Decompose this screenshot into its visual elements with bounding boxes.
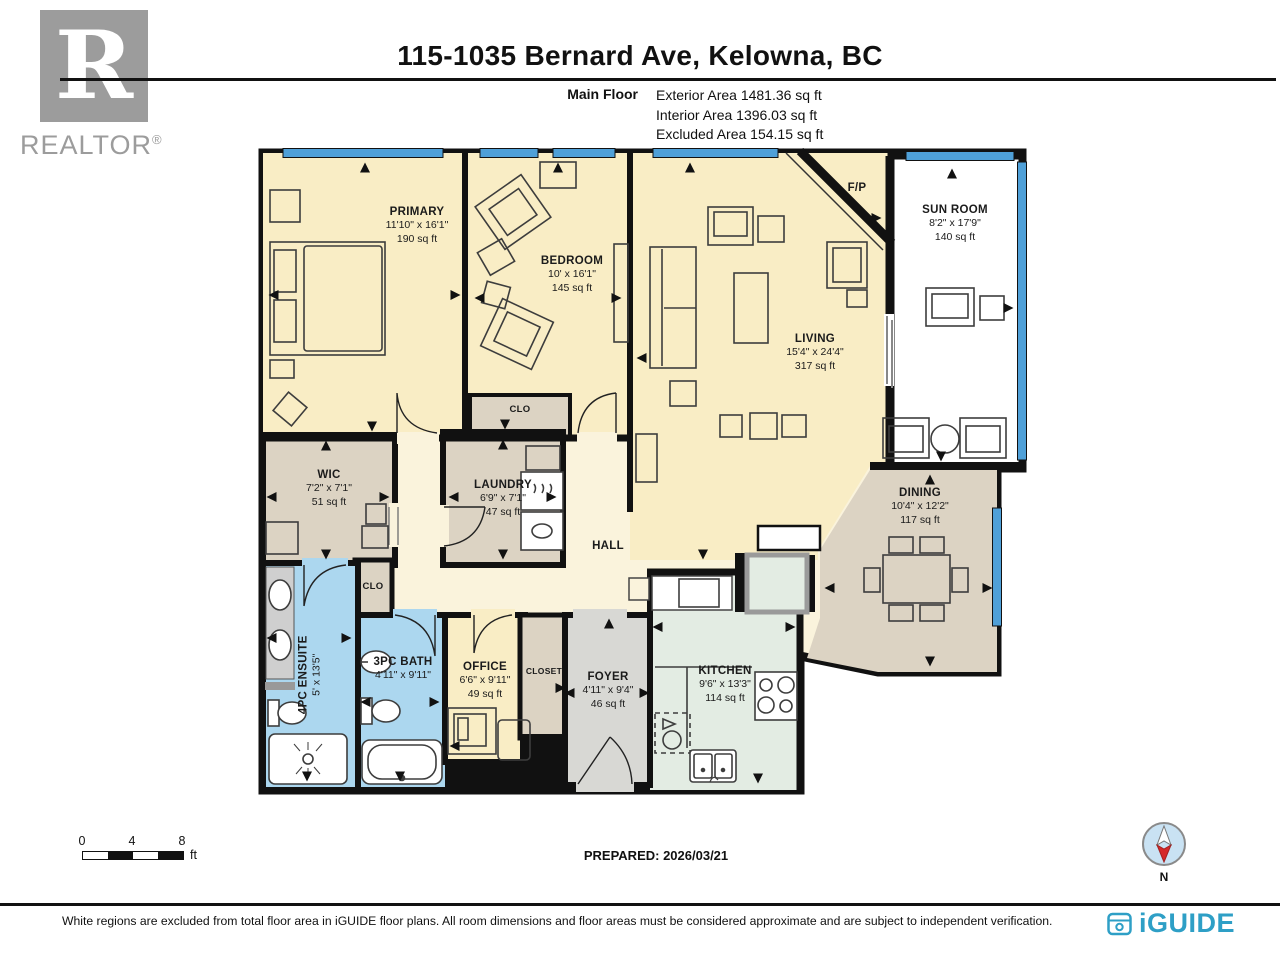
realtor-wordmark: REALTOR® (20, 130, 163, 161)
prepared-date: PREPARED: 2026/03/21 (556, 848, 756, 863)
room-label-clo-bedroom: CLO (489, 404, 551, 416)
scale-tick-0: 0 (74, 834, 90, 848)
footer-divider (0, 903, 1280, 906)
window (653, 149, 778, 158)
room-label-laundry: LAUNDRY 6'9" x 7'1" 47 sq ft (443, 478, 563, 519)
room-label-bedroom: BEDROOM 10' x 16'1" 145 sq ft (512, 254, 632, 295)
room-label-hall: HALL (568, 539, 648, 553)
room-label-kitchen: KITCHEN 9'6" x 13'3" 114 sq ft (665, 664, 785, 705)
iguide-wordmark: iGUIDE (1139, 908, 1235, 939)
registered-mark: ® (152, 132, 163, 147)
kitchen-counter-icon (747, 555, 807, 612)
exterior-area: Exterior Area 1481.36 sq ft (656, 86, 823, 106)
room-label-living: LIVING 15'4" x 24'4" 317 sq ft (755, 332, 875, 373)
excluded-area: Excluded Area 154.15 sq ft (656, 125, 823, 145)
compass-icon: N (1136, 818, 1192, 894)
window (1018, 162, 1027, 460)
room-label-fireplace: F/P (826, 181, 888, 195)
room-label-primary: PRIMARY 11'10" x 16'1" 190 sq ft (357, 205, 477, 246)
scale-tick-4: 4 (124, 834, 140, 848)
sink-icon (269, 580, 291, 610)
window (993, 508, 1002, 626)
room-label-clo-hall: CLO (342, 581, 404, 593)
window (283, 149, 443, 158)
room-label-wic: WIC 7'2" x 7'1" 51 sq ft (269, 468, 389, 509)
window (480, 149, 538, 158)
room-label-dining: DINING 10'4" x 12'2" 117 sq ft (860, 486, 980, 527)
scale-bar-segments (82, 851, 184, 860)
compass-north-label: N (1136, 870, 1192, 884)
scale-bar: 0 4 8 ft (82, 834, 302, 864)
disclaimer-text: White regions are excluded from total fl… (62, 914, 1062, 928)
iguide-logo: iGUIDE (1106, 908, 1235, 939)
room-label-sunroom: SUN ROOM 8'2" x 17'9" 140 sq ft (895, 203, 1015, 244)
interior-area: Interior Area 1396.03 sq ft (656, 106, 823, 126)
window (553, 149, 615, 158)
room-label-foyer: FOYER 4'11" x 9'4" 46 sq ft (563, 670, 653, 711)
toilet-icon (372, 700, 400, 722)
scale-unit: ft (190, 848, 197, 862)
page-title: 115-1035 Bernard Ave, Kelowna, BC (0, 40, 1280, 72)
floor-plan: PRIMARY 11'10" x 16'1" 190 sq ft BEDROOM… (258, 148, 1028, 798)
room-label-ensuite: 4PC ENSUITE 5' x 13'5" (296, 595, 324, 755)
iguide-icon (1106, 910, 1134, 938)
floor-label: Main Floor (440, 86, 638, 102)
title-divider (60, 78, 1276, 81)
floorplan-page: { "header": { "title": "115-1035 Bernard… (0, 0, 1280, 960)
window (906, 152, 1014, 161)
area-summary: Exterior Area 1481.36 sq ft Interior Are… (656, 86, 823, 145)
scale-tick-8: 8 (174, 834, 190, 848)
sink-icon (269, 630, 291, 660)
